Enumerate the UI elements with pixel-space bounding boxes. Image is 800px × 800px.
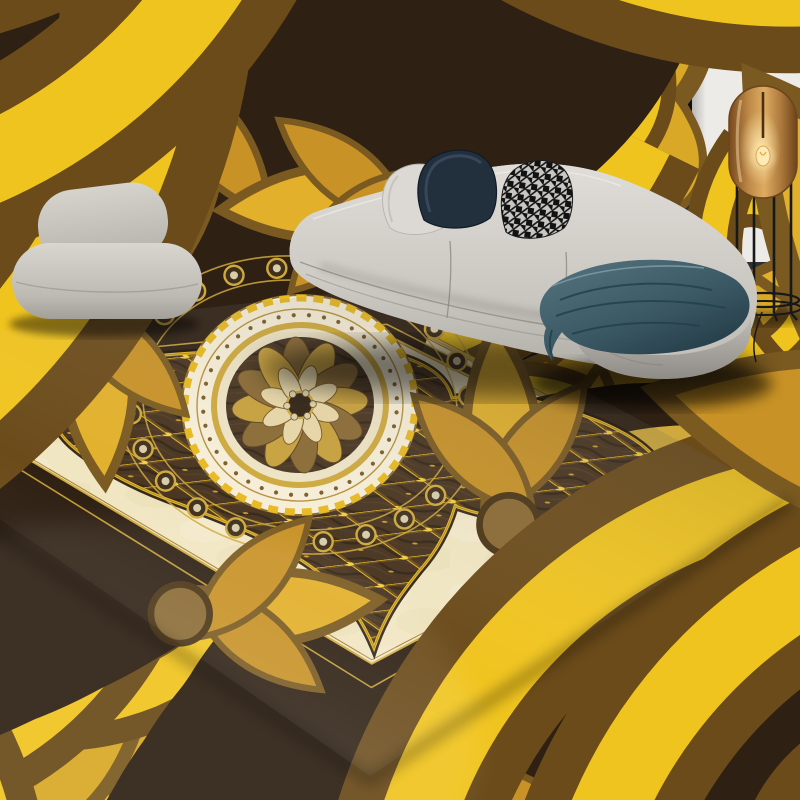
pillow-navy [418,150,497,228]
living-room-scene [0,0,800,800]
lamp-shade [729,86,797,198]
pillow-houndstooth-shade [501,160,572,238]
scene-canvas [0,0,800,800]
settee-base [12,243,202,319]
light-bulb [756,146,770,166]
